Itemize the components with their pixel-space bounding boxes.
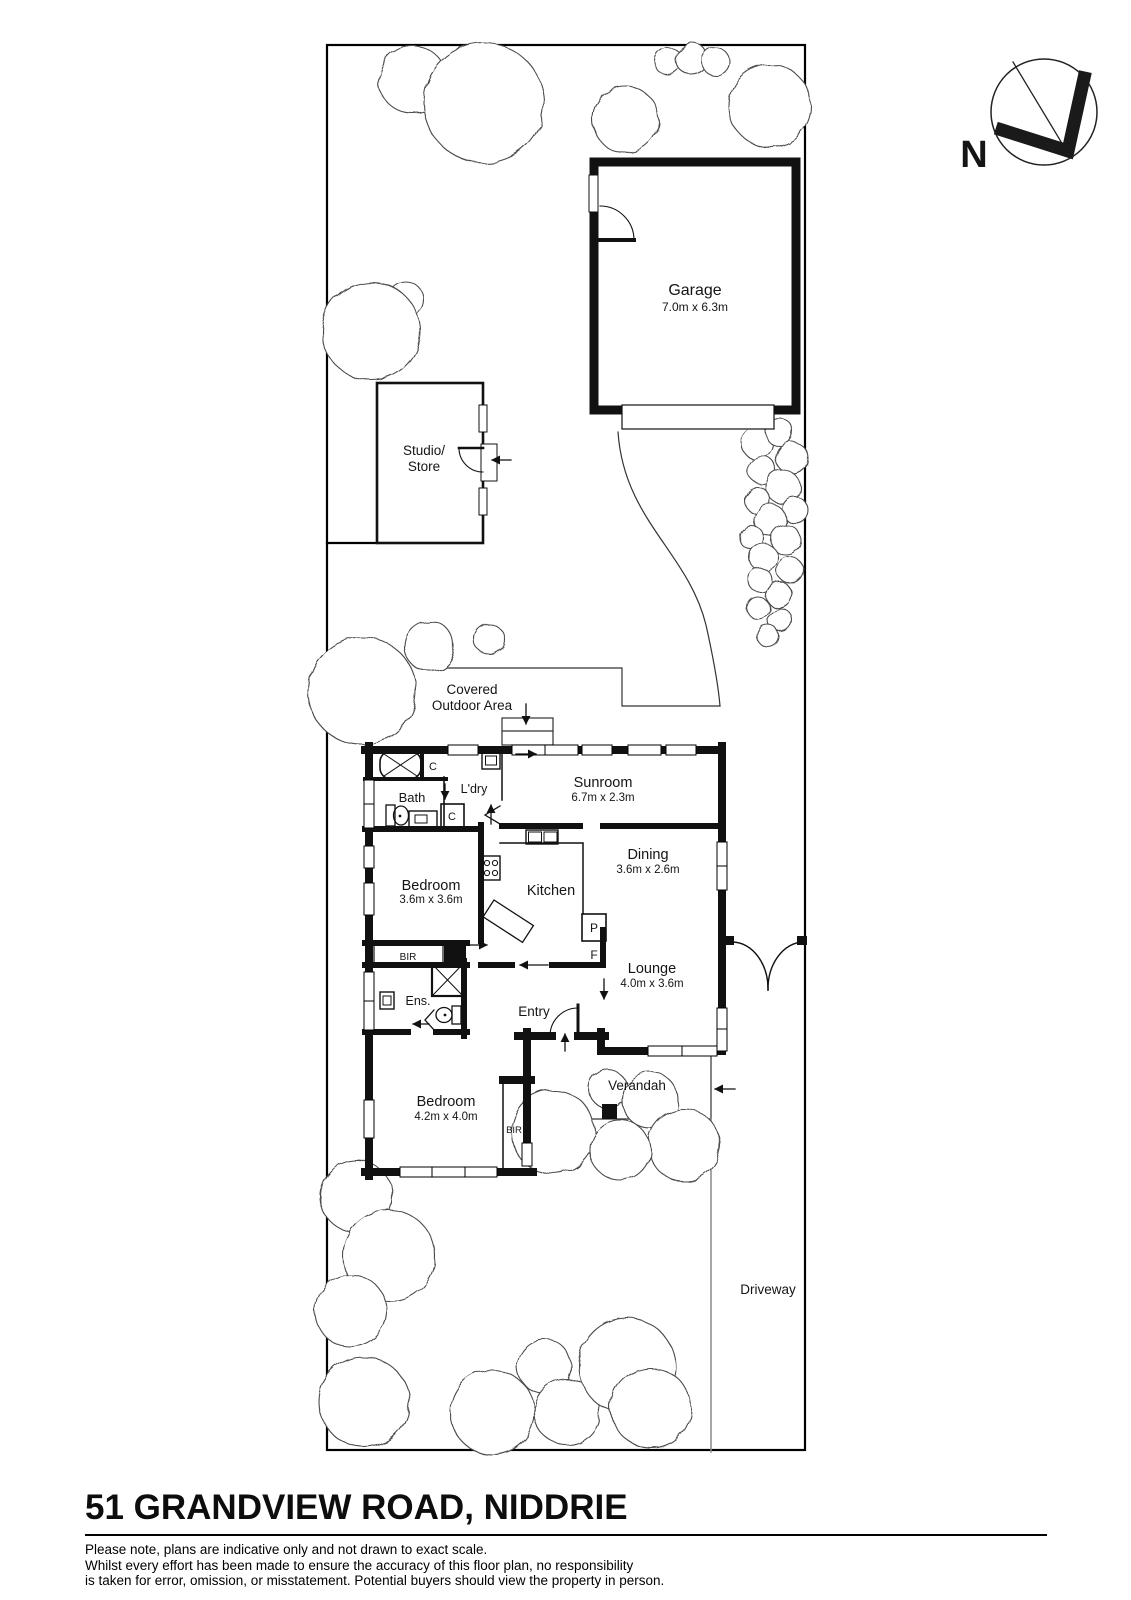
north-arrow: N bbox=[960, 59, 1097, 176]
pantry-label: P bbox=[590, 921, 598, 935]
site-lines bbox=[430, 432, 720, 1452]
dining-label: Dining bbox=[627, 847, 668, 863]
bath-vanity bbox=[409, 811, 437, 827]
title-block: 51 GRANDVIEW ROAD, NIDDRIE Please note, … bbox=[85, 1488, 1075, 1589]
ensuite-vanity bbox=[380, 992, 394, 1009]
disclaimer-line-1: Please note, plans are indicative only a… bbox=[85, 1542, 1075, 1558]
garage-door-panel bbox=[622, 405, 774, 429]
studio-label-1: Studio/ bbox=[403, 443, 445, 458]
covered-outdoor-label-1: Covered bbox=[446, 682, 497, 697]
stove bbox=[482, 856, 500, 880]
bedroom-middle-label: Bedroom bbox=[402, 878, 461, 894]
floorplan-page: N Garage 7.0m x 6.3m Studio/ Store Cover… bbox=[0, 0, 1131, 1600]
floorplan-svg: N Garage 7.0m x 6.3m Studio/ Store Cover… bbox=[0, 0, 1131, 1475]
bedroom-middle-dims: 3.6m x 3.6m bbox=[399, 894, 462, 906]
sunroom-label: Sunroom bbox=[574, 775, 633, 791]
driveway-gates bbox=[723, 936, 807, 990]
laundry-trough bbox=[482, 752, 500, 769]
fridge-label: F bbox=[590, 948, 597, 962]
studio-window bbox=[479, 488, 487, 515]
entry-label: Entry bbox=[518, 1004, 550, 1019]
covered-outdoor-label-2: Outdoor Area bbox=[432, 698, 513, 713]
page-title: 51 GRANDVIEW ROAD, NIDDRIE bbox=[85, 1488, 1075, 1528]
driveway-label: Driveway bbox=[740, 1282, 796, 1297]
garage-dims: 7.0m x 6.3m bbox=[662, 300, 728, 314]
verandah-label: Verandah bbox=[608, 1078, 666, 1093]
cupboard-label-1: C bbox=[429, 761, 437, 773]
laundry-label: L'dry bbox=[461, 782, 488, 796]
bir-label-middle: BIR bbox=[400, 952, 417, 963]
ensuite-label: Ens. bbox=[405, 994, 430, 1008]
cupboard-label-2: C bbox=[448, 811, 456, 823]
bedroom-front-dims: 4.2m x 4.0m bbox=[414, 1111, 477, 1123]
disclaimer: Please note, plans are indicative only a… bbox=[85, 1542, 1075, 1589]
disclaimer-line-3: is taken for error, omission, or misstat… bbox=[85, 1573, 1075, 1589]
dining-dims: 3.6m x 2.6m bbox=[616, 864, 679, 876]
disclaimer-line-2: Whilst every effort has been made to ens… bbox=[85, 1558, 1075, 1574]
garage-label: Garage bbox=[668, 282, 721, 299]
entry-door-arc bbox=[550, 1008, 578, 1036]
verandah-post bbox=[602, 1104, 617, 1119]
studio-door-jamb bbox=[481, 444, 497, 481]
bedroom-front-label: Bedroom bbox=[417, 1094, 476, 1110]
kitchen-bench bbox=[483, 900, 533, 942]
bath-label: Bath bbox=[399, 790, 426, 805]
north-label: N bbox=[960, 134, 987, 176]
laundry-door-chevron bbox=[485, 806, 500, 824]
bedroom-door-chevron bbox=[425, 1010, 435, 1031]
studio-label-2: Store bbox=[408, 459, 440, 474]
bir-label-front: BIR bbox=[506, 1125, 522, 1136]
lounge-label: Lounge bbox=[628, 961, 676, 977]
garage-window bbox=[589, 175, 598, 212]
ensuite-toilet bbox=[452, 1006, 461, 1024]
kitchen-label: Kitchen bbox=[527, 883, 575, 899]
fixtures bbox=[374, 751, 617, 1119]
sunroom-dims: 6.7m x 2.3m bbox=[571, 792, 634, 804]
title-rule bbox=[85, 1534, 1047, 1536]
garden-path bbox=[618, 432, 720, 706]
lounge-dims: 4.0m x 3.6m bbox=[620, 978, 683, 990]
studio-window bbox=[479, 405, 487, 432]
